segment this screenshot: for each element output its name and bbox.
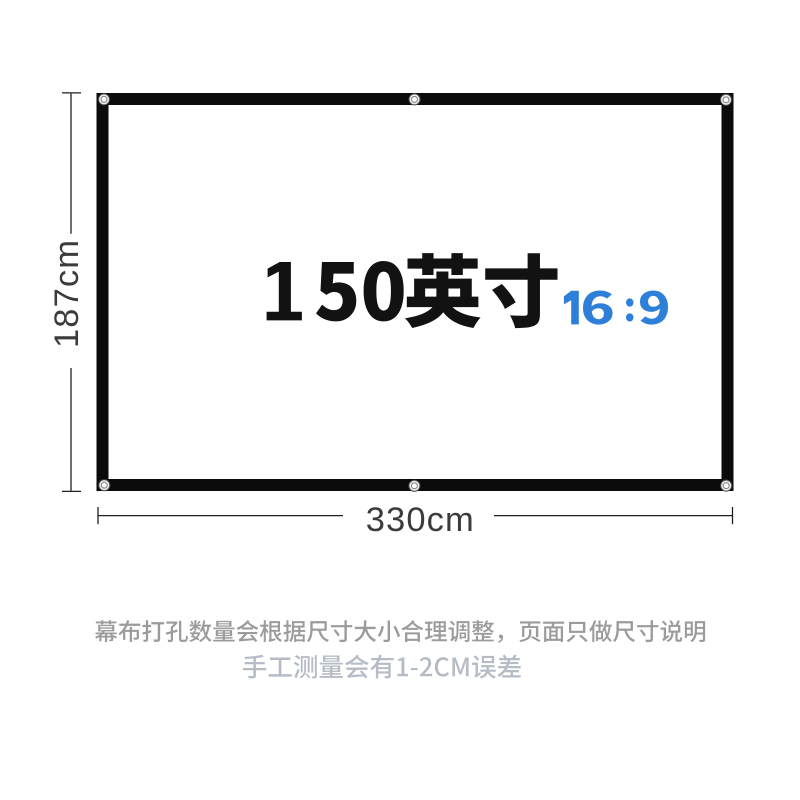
svg-text:187cm: 187cm bbox=[48, 239, 86, 348]
svg-text:330cm: 330cm bbox=[366, 501, 475, 539]
